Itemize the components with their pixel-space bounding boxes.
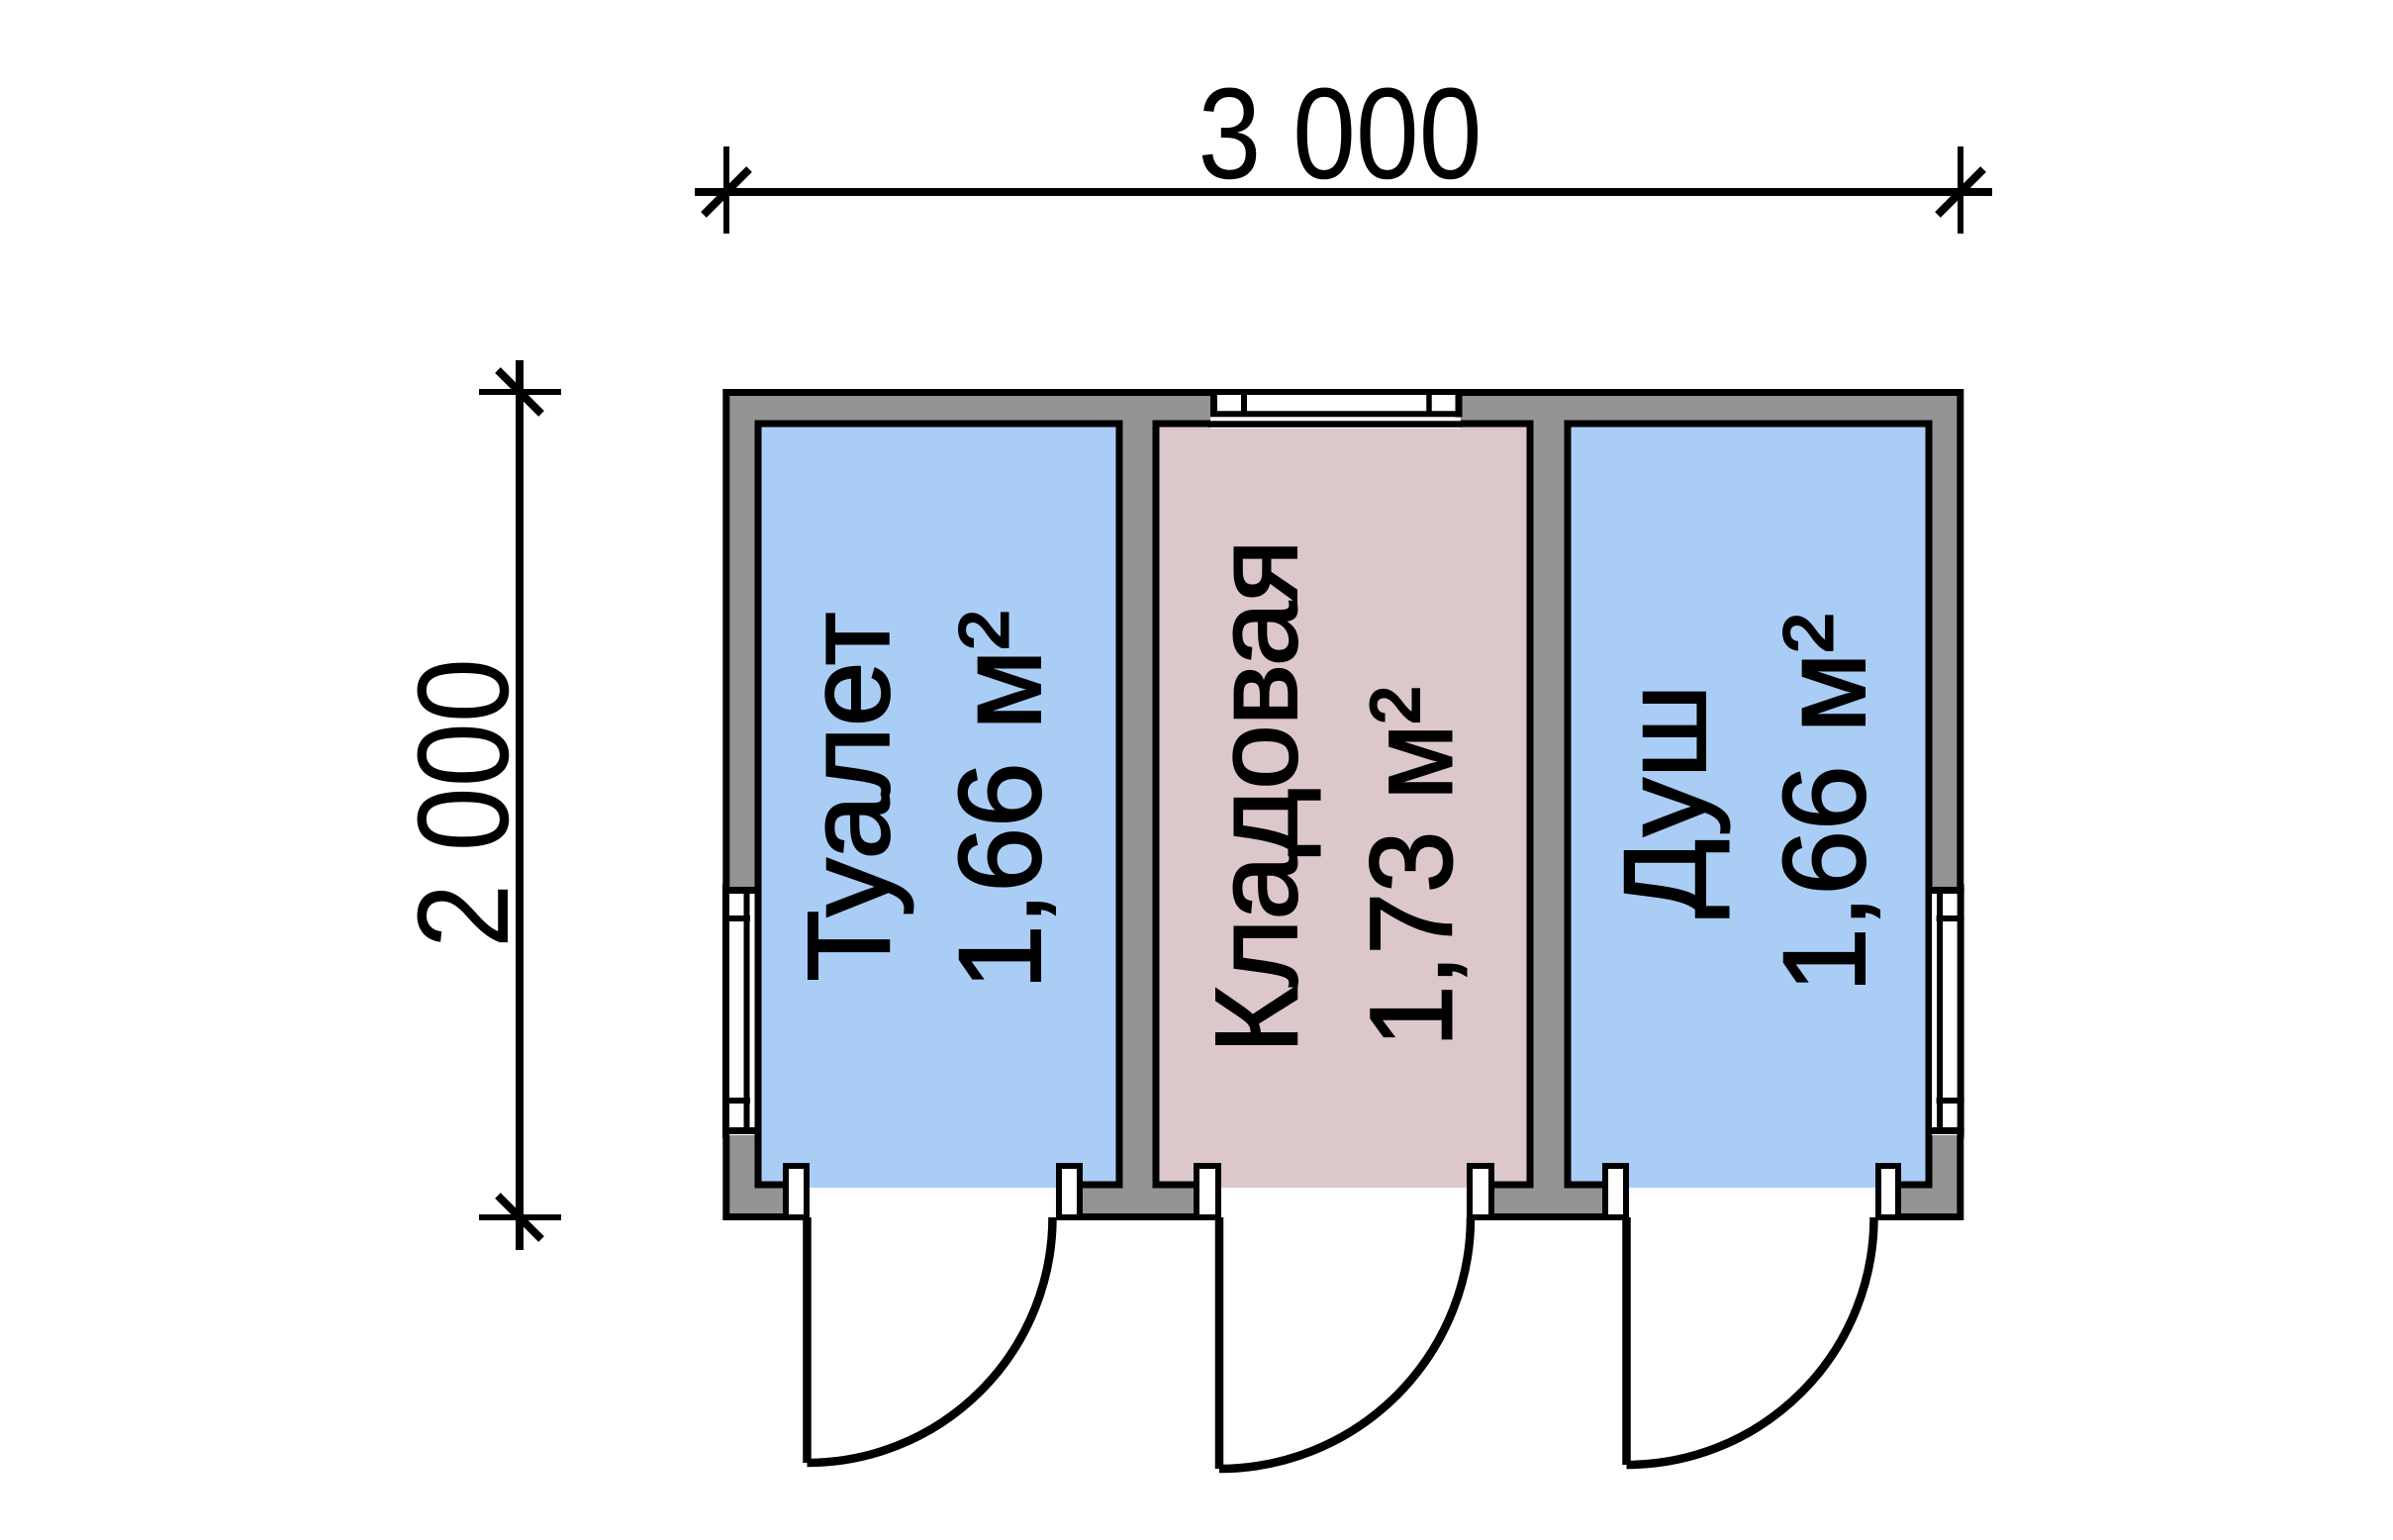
svg-text:2 000: 2 000 (390, 658, 535, 948)
svg-text:1,66 м²: 1,66 м² (1760, 614, 1890, 993)
svg-text:3 000: 3 000 (1198, 60, 1483, 206)
svg-text:Душ: Душ (1600, 684, 1731, 917)
svg-text:1,66 м²: 1,66 м² (935, 611, 1066, 990)
svg-text:1,73 м²: 1,73 м² (1347, 687, 1477, 1047)
svg-text:Кладовая: Кладовая (1192, 540, 1322, 1053)
svg-text:Туалет: Туалет (784, 612, 914, 981)
